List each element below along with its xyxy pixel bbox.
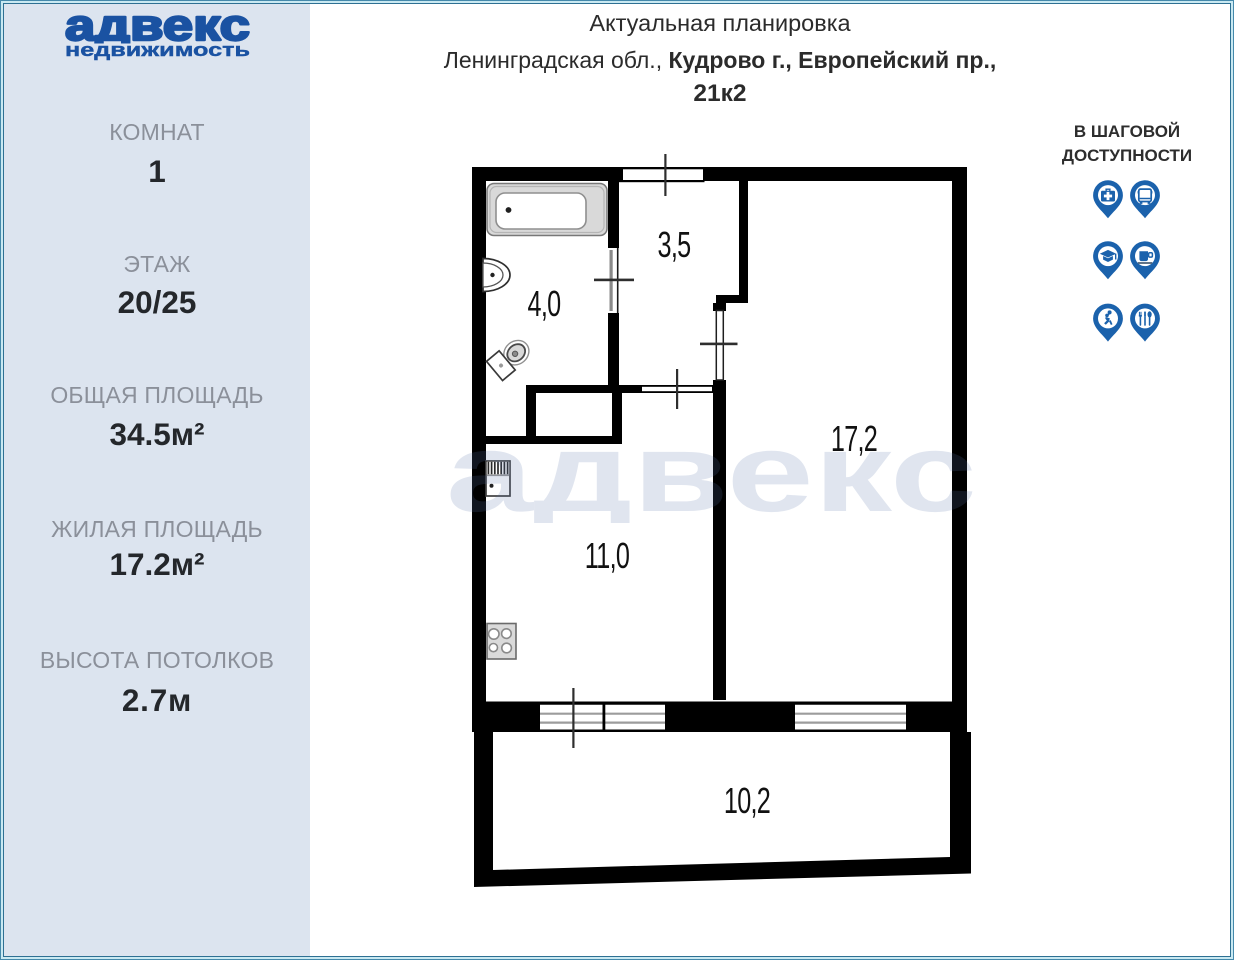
svg-text:адвекс: адвекс xyxy=(446,410,977,535)
